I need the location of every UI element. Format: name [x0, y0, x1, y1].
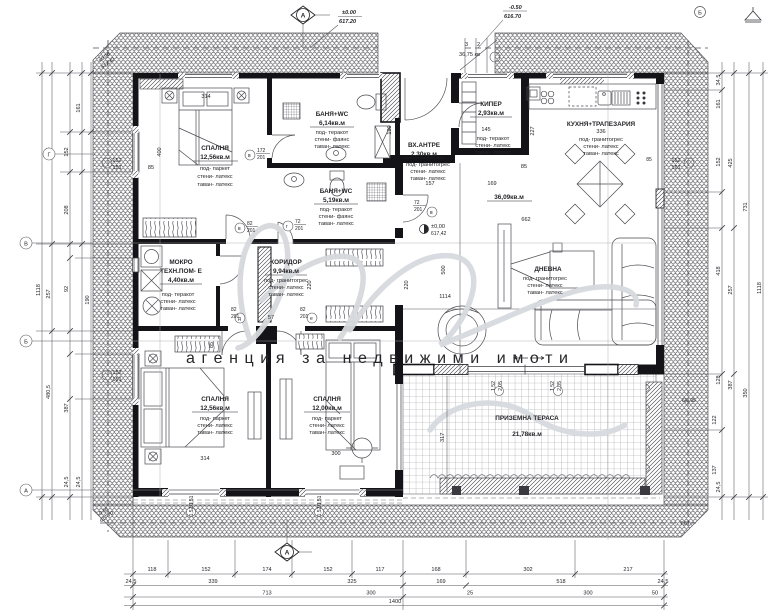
svg-text:339: 339 — [208, 579, 217, 585]
svg-text:в: в — [248, 153, 251, 159]
svg-text:ТЕХН.ПОМ- Е: ТЕХН.ПОМ- Е — [160, 268, 203, 275]
svg-text:таван- латекс: таван- латекс — [583, 151, 619, 157]
svg-text:1400: 1400 — [389, 599, 401, 605]
svg-text:под- паркет: под- паркет — [312, 416, 342, 422]
svg-text:таван- латекс: таван- латекс — [318, 221, 354, 227]
svg-text:85: 85 — [646, 157, 652, 163]
svg-text:36,09кв.м: 36,09кв.м — [494, 194, 524, 201]
svg-text:±0.00: ±0.00 — [342, 10, 357, 16]
svg-text:стени- латекс: стени- латекс — [527, 283, 562, 289]
svg-text:12,00кв.м: 12,00кв.м — [312, 405, 342, 412]
svg-text:1118: 1118 — [36, 284, 42, 296]
svg-text:Б: Б — [698, 11, 702, 17]
svg-text:257: 257 — [728, 285, 734, 294]
svg-text:731: 731 — [743, 202, 749, 211]
svg-text:518: 518 — [556, 579, 565, 585]
svg-text:СПАЛНЯ: СПАЛНЯ — [313, 396, 341, 403]
svg-text:387: 387 — [64, 403, 70, 412]
svg-text:152: 152 — [112, 370, 121, 376]
svg-text:36,75 кв: 36,75 кв — [459, 52, 480, 58]
svg-text:480,5: 480,5 — [46, 385, 52, 399]
svg-text:под- гранитогрес: под- гранитогрес — [406, 162, 450, 168]
svg-text:616.70: 616.70 — [504, 14, 522, 20]
svg-text:300: 300 — [366, 591, 375, 597]
svg-text:117: 117 — [376, 567, 385, 573]
svg-text:50: 50 — [652, 591, 658, 597]
svg-text:БАНЯ+WC: БАНЯ+WC — [320, 188, 353, 195]
svg-text:стени- латекс: стени- латекс — [475, 143, 510, 149]
svg-text:617,42: 617,42 — [431, 231, 447, 237]
svg-text:стени- латекс: стени- латекс — [197, 174, 232, 180]
svg-text:2,05: 2,05 — [498, 381, 504, 391]
svg-text:300: 300 — [583, 591, 592, 597]
svg-text:ДНЕВНА: ДНЕВНА — [534, 266, 562, 273]
svg-text:713: 713 — [262, 591, 271, 597]
svg-text:145: 145 — [481, 127, 490, 133]
svg-text:152: 152 — [671, 158, 680, 164]
svg-text:А: А — [285, 550, 290, 557]
svg-text:24,5: 24,5 — [716, 482, 722, 493]
svg-text:300: 300 — [331, 451, 340, 457]
svg-text:таван- латекс: таван- латекс — [309, 430, 345, 436]
svg-text:-0.50: -0.50 — [509, 5, 523, 11]
svg-text:1,52/1,51: 1,52/1,51 — [317, 495, 323, 516]
svg-text:таван- латекс: таван- латекс — [527, 290, 563, 296]
svg-text:агенция за недвижими имоти: агенция за недвижими имоти — [186, 350, 575, 367]
svg-text:24,5: 24,5 — [64, 477, 70, 488]
svg-text:таван- латекс: таван- латекс — [160, 306, 196, 312]
svg-text:152: 152 — [323, 567, 332, 573]
svg-text:336: 336 — [596, 129, 605, 135]
svg-text:174: 174 — [262, 567, 271, 573]
svg-text:500: 500 — [441, 265, 447, 274]
svg-text:6|8,95: 6|8,95 — [682, 398, 696, 404]
svg-text:227: 227 — [530, 126, 536, 135]
svg-text:72: 72 — [295, 219, 301, 225]
svg-text:152: 152 — [716, 157, 722, 166]
svg-text:9,94кв.м: 9,94кв.м — [273, 268, 299, 275]
svg-text:152: 152 — [201, 567, 210, 573]
svg-text:таван- латекс: таван- латекс — [268, 292, 304, 298]
svg-text:201: 201 — [414, 207, 423, 213]
svg-text:21,78кв.м: 21,78кв.м — [512, 431, 542, 438]
svg-text:КУХНЯ+ТРАПЕЗАРИЯ: КУХНЯ+ТРАПЕЗАРИЯ — [567, 121, 636, 128]
svg-text:24,5: 24,5 — [126, 579, 137, 585]
svg-text:302: 302 — [523, 567, 532, 573]
svg-text:1,52/1,51: 1,52/1,51 — [189, 495, 195, 516]
svg-text:157: 157 — [425, 181, 434, 187]
svg-text:КОРИДОР: КОРИДОР — [270, 259, 302, 266]
svg-text:152: 152 — [112, 158, 121, 164]
svg-text:118: 118 — [148, 567, 157, 573]
svg-text:12,56кв.м: 12,56кв.м — [200, 405, 230, 412]
svg-text:стени- латекс: стени- латекс — [268, 285, 303, 291]
svg-text:152: 152 — [64, 147, 70, 156]
svg-text:325: 325 — [347, 579, 356, 585]
svg-text:под- теракот: под- теракот — [320, 207, 353, 213]
svg-text:2,35: 2,35 — [557, 381, 563, 391]
svg-text:201: 201 — [247, 228, 256, 234]
svg-text:1118: 1118 — [757, 282, 763, 294]
svg-text:151: 151 — [112, 377, 121, 383]
svg-text:220: 220 — [404, 280, 410, 289]
svg-text:190: 190 — [387, 125, 393, 134]
svg-text:425: 425 — [728, 158, 734, 167]
svg-text:1,52: 1,52 — [550, 381, 556, 391]
svg-text:5,19кв.м: 5,19кв.м — [323, 197, 349, 204]
svg-text:169: 169 — [487, 181, 496, 187]
svg-text:Б: Б — [24, 340, 28, 346]
svg-text:под- теракот: под- теракот — [162, 292, 195, 298]
svg-text:92: 92 — [64, 286, 70, 292]
svg-text:2,93кв.м: 2,93кв.м — [478, 110, 504, 117]
svg-text:161: 161 — [76, 103, 82, 112]
svg-text:2: 2 — [477, 42, 480, 48]
svg-text:85: 85 — [521, 164, 527, 170]
svg-text:168: 168 — [431, 567, 440, 573]
svg-text:под- теракот: под- теракот — [316, 130, 349, 136]
svg-text:172: 172 — [257, 148, 266, 154]
svg-text:стени- фаянс: стени- фаянс — [319, 214, 354, 220]
svg-text:4,40кв.м: 4,40кв.м — [168, 277, 194, 284]
svg-text:стени- латекс: стени- латекс — [583, 144, 618, 150]
svg-text:220: 220 — [307, 280, 313, 289]
svg-text:Г: Г — [47, 153, 50, 159]
svg-text:128: 128 — [716, 375, 722, 384]
svg-text:под- паркет: под- паркет — [200, 416, 230, 422]
svg-text:таван- латекс: таван- латекс — [314, 144, 350, 150]
svg-text:161: 161 — [716, 99, 722, 108]
svg-text:57: 57 — [268, 315, 274, 321]
svg-text:24,5: 24,5 — [658, 579, 669, 585]
svg-text:таван- латекс: таван- латекс — [475, 150, 511, 156]
svg-text:1114: 1114 — [439, 294, 451, 300]
svg-text:ПРИЗЕМНА ТЕРАСА: ПРИЗЕМНА ТЕРАСА — [495, 415, 559, 422]
svg-text:2,30кв.м: 2,30кв.м — [411, 151, 437, 158]
svg-text:317: 317 — [440, 433, 446, 442]
svg-text:под- гранитогрес: под- гранитогрес — [579, 137, 623, 143]
svg-text:под- гранитогрес: под- гранитогрес — [523, 276, 567, 282]
svg-text:СПАЛНЯ: СПАЛНЯ — [201, 396, 229, 403]
svg-text:7,07: 7,07 — [680, 521, 690, 527]
svg-text:85: 85 — [209, 342, 215, 348]
svg-text:208: 208 — [64, 205, 70, 214]
svg-text:137: 137 — [712, 465, 718, 474]
svg-text:82: 82 — [247, 221, 253, 227]
svg-text:201: 201 — [300, 314, 309, 320]
svg-text:12,56кв.м: 12,56кв.м — [200, 154, 230, 161]
svg-text:257: 257 — [46, 289, 52, 298]
svg-text:201: 201 — [257, 155, 266, 161]
svg-text:34,5: 34,5 — [716, 75, 722, 86]
svg-text:217: 217 — [623, 567, 632, 573]
svg-text:стени- латекс: стени- латекс — [160, 299, 195, 305]
svg-text:314: 314 — [201, 94, 210, 100]
svg-text:ВХ.АНТРЕ: ВХ.АНТРЕ — [408, 142, 441, 149]
svg-text:в: в — [430, 210, 433, 216]
svg-text:г: г — [286, 224, 288, 230]
svg-text:±0,00: ±0,00 — [431, 224, 445, 230]
svg-text:А: А — [301, 13, 306, 20]
svg-text:6,14кв.м: 6,14кв.м — [319, 120, 345, 127]
svg-text:в: в — [238, 226, 241, 232]
svg-text:617.20: 617.20 — [339, 19, 357, 25]
svg-text:161: 161 — [671, 165, 680, 171]
svg-text:под- теракот: под- теракот — [477, 136, 510, 142]
svg-text:24,5: 24,5 — [76, 477, 82, 488]
svg-text:таван- латекс: таван- латекс — [197, 182, 233, 188]
svg-text:190: 190 — [85, 295, 91, 304]
svg-text:А: А — [24, 489, 28, 495]
svg-text:под- гранитогрес: под- гранитогрес — [264, 278, 308, 284]
svg-text:стени- фаянс: стени- фаянс — [315, 137, 350, 143]
svg-text:таван- латекс: таван- латекс — [197, 430, 233, 436]
svg-text:387: 387 — [728, 380, 734, 389]
svg-text:151: 151 — [112, 165, 121, 171]
svg-text:стени- латекс: стени- латекс — [410, 169, 445, 175]
svg-text:СПАЛНЯ: СПАЛНЯ — [201, 145, 229, 152]
svg-text:стени- латекс: стени- латекс — [197, 423, 232, 429]
svg-text:БАНЯ+WC: БАНЯ+WC — [316, 111, 349, 118]
svg-text:350: 350 — [743, 388, 749, 397]
svg-text:В: В — [24, 242, 28, 248]
svg-text:82: 82 — [231, 307, 237, 313]
svg-text:стени- латекс: стени- латекс — [309, 423, 344, 429]
svg-text:под- паркет: под- паркет — [200, 166, 230, 172]
svg-text:72: 72 — [414, 200, 420, 206]
svg-text:85: 85 — [148, 165, 154, 171]
svg-text:201: 201 — [295, 226, 304, 232]
svg-text:е: е — [310, 316, 313, 322]
svg-text:201: 201 — [231, 314, 240, 320]
svg-text:82: 82 — [300, 307, 306, 313]
svg-text:400: 400 — [157, 147, 163, 156]
svg-text:662: 662 — [521, 217, 530, 223]
svg-text:25: 25 — [467, 591, 473, 597]
svg-text:418: 418 — [716, 266, 722, 275]
svg-text:314: 314 — [200, 456, 209, 462]
svg-text:3: 3 — [465, 42, 468, 48]
svg-text:169: 169 — [436, 579, 445, 585]
svg-text:122: 122 — [712, 415, 718, 424]
svg-text:КИПЕР: КИПЕР — [480, 101, 502, 108]
svg-text:1,52: 1,52 — [491, 381, 497, 391]
svg-text:МОКРО: МОКРО — [169, 259, 192, 266]
